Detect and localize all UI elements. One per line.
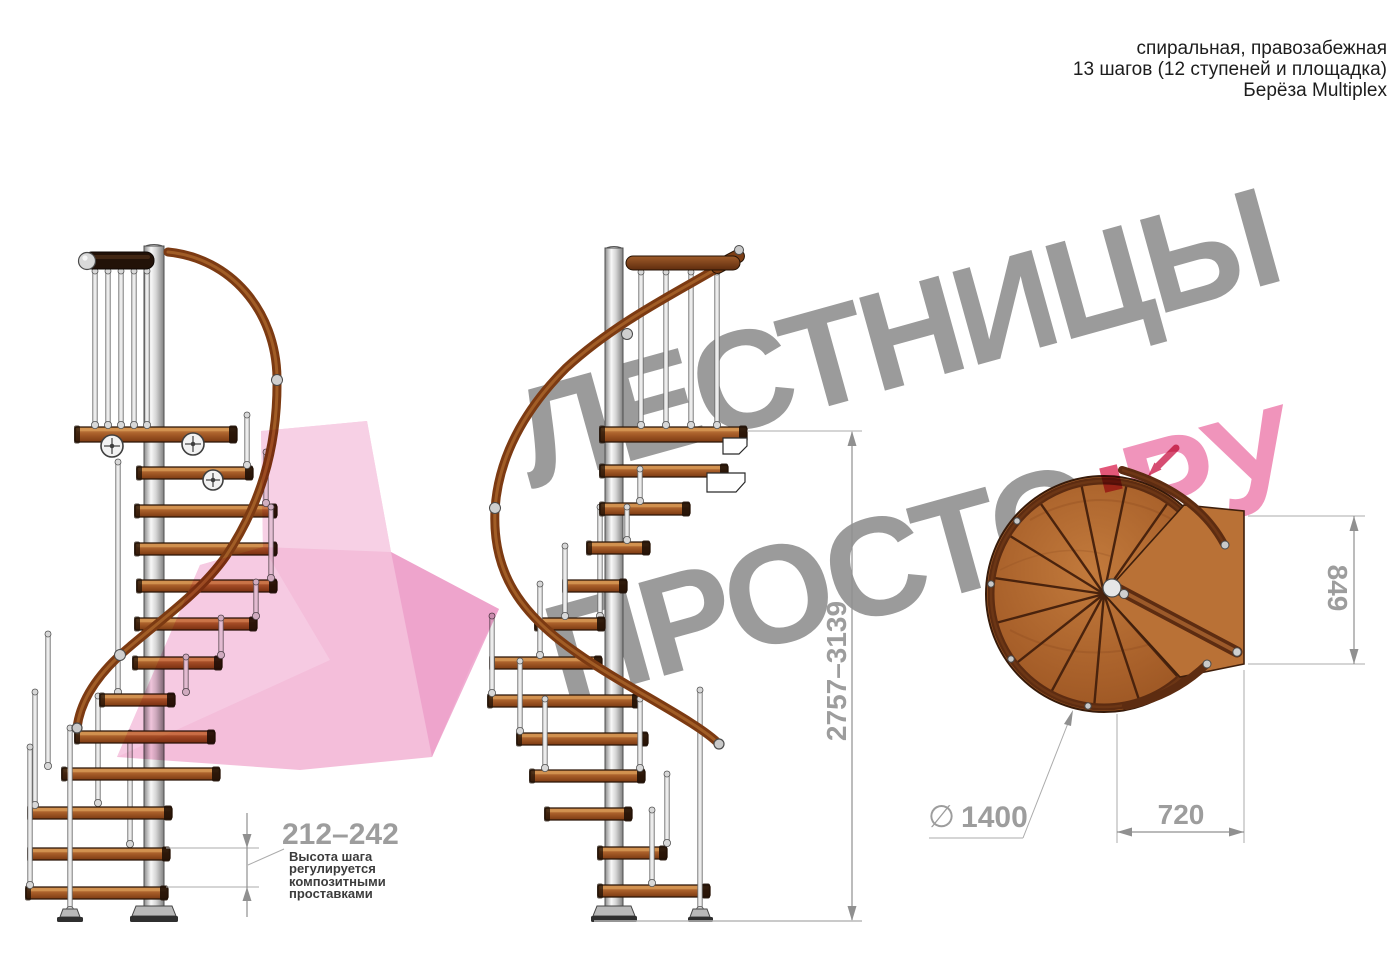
rail-end-cap: [714, 739, 724, 749]
baluster: [117, 268, 124, 429]
dim-landing-width: 720: [1140, 799, 1222, 831]
rail-sleeve: [115, 650, 126, 661]
middle-staircase-elevation: [487, 246, 747, 923]
tread: [136, 466, 253, 481]
tread: [586, 541, 650, 556]
tread: [61, 767, 220, 782]
diameter-icon: ∅: [928, 799, 961, 834]
title-line-type: спиральная, правозабежная: [1073, 38, 1387, 59]
tread: [562, 579, 627, 594]
baluster: [663, 771, 670, 847]
diameter-value: 1400: [961, 801, 1028, 834]
baluster: [143, 268, 150, 429]
rail-end-cap: [72, 723, 82, 733]
center-pole-top: [1103, 579, 1121, 597]
plan-view: [986, 470, 1244, 712]
base-flange: [57, 906, 178, 922]
tread: [516, 732, 648, 747]
tread: [74, 426, 237, 444]
note-line: проставками: [289, 888, 386, 900]
baluster: [26, 744, 33, 889]
baluster: [516, 658, 523, 735]
tread: [487, 694, 640, 709]
base-flange: [591, 906, 713, 922]
baluster: [66, 725, 73, 914]
red-arrow-icon: [1138, 440, 1188, 486]
baluster: [696, 687, 703, 914]
tread: [544, 807, 632, 822]
baluster: [636, 696, 643, 772]
baluster: [596, 504, 603, 620]
landing-railing: [79, 252, 155, 270]
baluster: [44, 631, 51, 770]
title-block: спиральная, правозабежная 13 шагов (12 с…: [1073, 38, 1387, 101]
tread: [27, 806, 172, 821]
baluster: [687, 269, 694, 429]
tread-bracket: [723, 438, 747, 454]
baluster: [91, 268, 98, 429]
drawing-sheet: ЛЕСТНИЦЫ ПРОСТО.РУ: [0, 0, 1400, 976]
rail-sleeve: [272, 375, 283, 386]
tread: [25, 886, 168, 901]
dim-total-height: 2757–3139: [821, 586, 853, 756]
dim-landing-depth: 849: [1321, 533, 1353, 643]
baluster: [243, 412, 250, 469]
tread: [599, 502, 690, 517]
tread: [597, 846, 667, 861]
baluster: [94, 693, 101, 807]
baluster: [637, 269, 644, 429]
tread: [27, 847, 170, 862]
rail-sleeve: [622, 329, 633, 340]
rail-ball-end: [79, 253, 96, 270]
title-line-steps: 13 шагов (12 ступеней и площадка): [1073, 59, 1387, 80]
baluster: [104, 268, 111, 429]
rail-sleeve: [490, 503, 501, 514]
baluster: [636, 466, 643, 505]
baluster: [713, 269, 720, 429]
dim-diameter: ∅1400: [928, 799, 1028, 835]
baluster: [648, 807, 655, 887]
title-line-material: Берёза Multiplex: [1073, 80, 1387, 101]
baluster: [561, 543, 568, 620]
dim-step-height: 212–242: [282, 818, 399, 852]
tread-bracket: [707, 473, 745, 492]
step-height-note: Высота шага регулируется композитными пр…: [289, 851, 386, 901]
baluster: [541, 696, 548, 772]
baluster: [623, 504, 630, 544]
baluster: [130, 268, 137, 429]
rail-end-cap: [735, 246, 744, 255]
